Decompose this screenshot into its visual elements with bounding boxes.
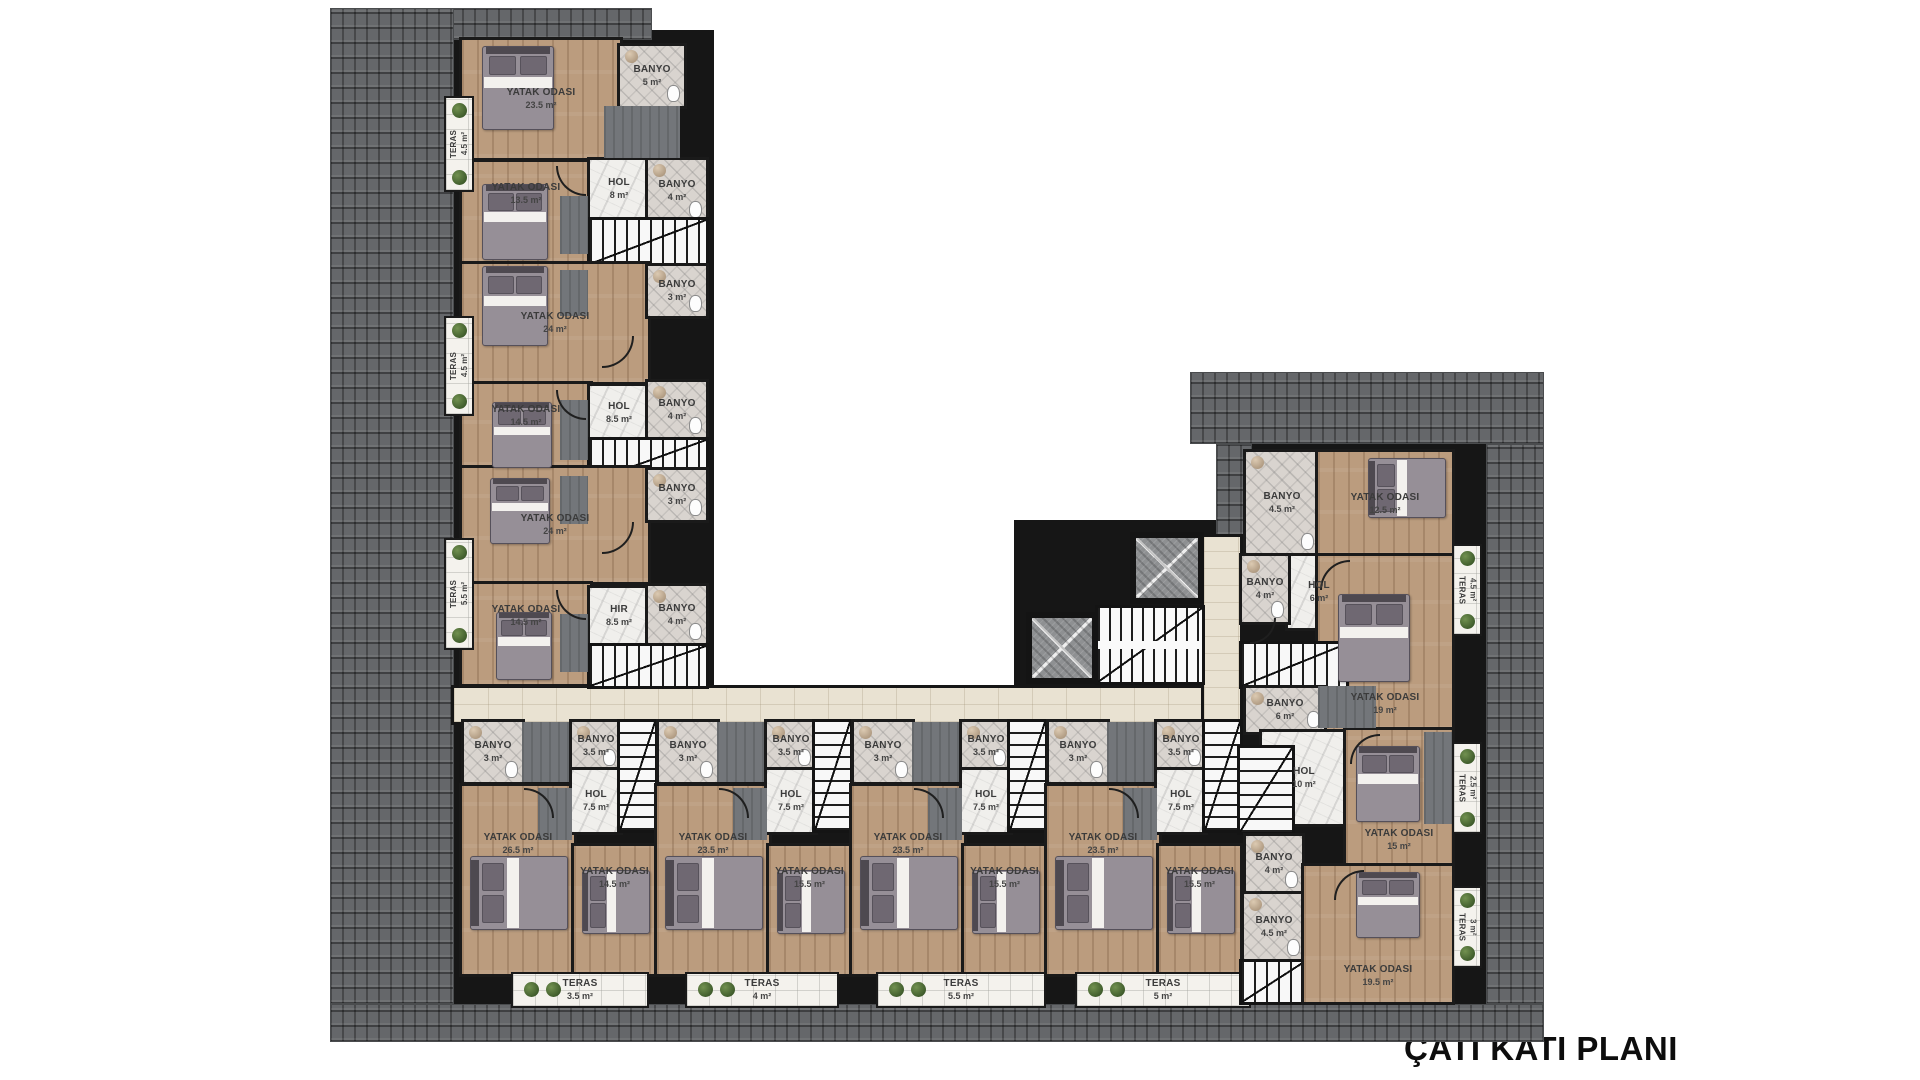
roof-tiles [1190, 372, 1544, 444]
room-bathroom: BANYO4 m² [648, 382, 706, 438]
terrace: TERAS5.5 m² [878, 974, 1044, 1006]
room-hall: HOL7.5 m² [1157, 770, 1205, 832]
terrace: TERAS4.5 m² [446, 318, 472, 414]
room-label: BANYO4.5 m² [1246, 452, 1318, 554]
room-bathroom: BANYO4.5 m² [1246, 452, 1318, 554]
bed-pillow [501, 620, 523, 636]
room-area: 3 m² [484, 753, 503, 764]
bed-headboard [1168, 873, 1173, 930]
room-area: 4.5 m² [1261, 928, 1287, 939]
room-area: 8 m² [610, 190, 629, 201]
room-name: TERAS [944, 978, 979, 991]
bed-headboard [486, 267, 545, 273]
bed-pillow [482, 863, 504, 892]
wardrobe-shading [1318, 686, 1376, 728]
room-label: TERAS5.5 m² [878, 974, 1044, 1006]
room-area: 3 m² [1069, 753, 1088, 764]
bed-sheet [1397, 460, 1407, 516]
room-name: BANYO [1255, 915, 1292, 928]
room-area: 8.5 m² [606, 414, 632, 425]
room-label: TERAS3 m² [1454, 888, 1480, 966]
room-bathroom: BANYO3.5 m² [767, 722, 815, 770]
bed-furniture [1055, 856, 1153, 930]
room-hall: HOL8.5 m² [590, 386, 648, 440]
staircase [620, 722, 655, 830]
room-name: BANYO [658, 483, 695, 496]
bed-headboard [1359, 873, 1416, 878]
room-label: BANYO4 m² [648, 382, 706, 438]
room-area: 3.5 m² [1168, 747, 1194, 758]
bed-pillow [496, 486, 519, 501]
wardrobe-shading [1107, 722, 1157, 782]
room-name: HOL [1293, 766, 1315, 779]
bed-furniture [470, 856, 568, 930]
terrace: TERAS4 m² [687, 974, 837, 1006]
room-hall: HOL8 m² [590, 160, 648, 218]
bed-pillow [1175, 903, 1191, 928]
bed-headboard [1369, 461, 1375, 514]
bed-pillow [1345, 604, 1373, 624]
room-name: BANYO [967, 734, 1004, 747]
room-label: HOL7.5 m² [962, 770, 1010, 832]
room-name: BANYO [474, 740, 511, 753]
room-area: 4.5 m² [460, 132, 470, 155]
bed-pillow [488, 276, 514, 294]
staircase [1205, 722, 1240, 830]
bed-sheet [484, 296, 545, 306]
bed-furniture [777, 870, 845, 934]
bed-headboard [493, 479, 546, 484]
room-bathroom: BANYO3 m² [648, 470, 706, 520]
room-area: 3 m² [874, 753, 893, 764]
room-label: TERAS3.5 m² [513, 974, 647, 1006]
room-area: 26.5 m² [502, 845, 533, 856]
wardrobe-shading [522, 722, 572, 782]
staircase [1010, 722, 1045, 830]
room-area: 3.5 m² [567, 991, 593, 1002]
bed-pillow [1175, 876, 1191, 901]
room-bathroom: BANYO3 m² [659, 722, 717, 782]
room-name: HOL [608, 177, 630, 190]
bed-sheet [1092, 858, 1104, 927]
room-name: HOL [1170, 789, 1192, 802]
room-area: 7.5 m² [1168, 802, 1194, 813]
room-area: 3 m² [668, 292, 687, 303]
bed-furniture [1338, 594, 1410, 682]
room-name: HOL [975, 789, 997, 802]
bed-furniture [482, 184, 548, 260]
room-label: HIR8.5 m² [590, 588, 648, 644]
room-name: BANYO [1255, 852, 1292, 865]
room-area: 3 m² [1468, 919, 1478, 935]
room-name: HOL [585, 789, 607, 802]
room-label: BANYO3 m² [1049, 722, 1107, 782]
room-name: BANYO [658, 398, 695, 411]
room-area: 3.5 m² [973, 747, 999, 758]
bed-pillow [872, 863, 894, 892]
room-area: 10 m² [1292, 779, 1316, 790]
bed-sheet [1358, 774, 1418, 784]
terrace: TERAS3 m² [1454, 888, 1480, 966]
bed-headboard [486, 185, 545, 191]
room-name: HIR [610, 604, 628, 617]
room-hall: HIR8.5 m² [590, 588, 648, 644]
staircase [1240, 748, 1292, 832]
bed-headboard [1056, 860, 1064, 926]
room-name: BANYO [1266, 698, 1303, 711]
room-name: HOL [608, 401, 630, 414]
room-name: TERAS [449, 580, 459, 608]
bed-pillow [498, 410, 521, 425]
room-name: BANYO [1162, 734, 1199, 747]
room-name: BANYO [577, 734, 614, 747]
bed-pillow [1376, 604, 1404, 624]
staircase [590, 220, 706, 264]
terrace: TERAS2.5 m² [1454, 744, 1480, 832]
wardrobe-shading [560, 196, 588, 254]
room-label: BANYO6 m² [1246, 688, 1324, 732]
room-name: BANYO [658, 179, 695, 192]
bed-pillow [872, 895, 894, 924]
bed-furniture [860, 856, 958, 930]
room-label: TERAS4.5 m² [446, 318, 472, 414]
room-label: TERAS4.5 m² [1454, 546, 1480, 634]
room-label: BANYO3.5 m² [1157, 722, 1205, 770]
room-name: YATAK ODASI [1344, 964, 1413, 977]
bed-furniture [1356, 872, 1420, 938]
room-name: BANYO [669, 740, 706, 753]
room-label: BANYO3 m² [854, 722, 912, 782]
bed-headboard [973, 873, 978, 930]
room-area: 4.5 m² [460, 354, 470, 377]
room-bathroom: BANYO3 m² [648, 266, 706, 316]
room-name: BANYO [658, 279, 695, 292]
staircase [590, 646, 706, 686]
room-label: TERAS5.5 m² [446, 540, 472, 648]
room-name: TERAS [1457, 576, 1467, 604]
room-area: 3 m² [679, 753, 698, 764]
bed-sheet [997, 872, 1006, 932]
room-area: 3.5 m² [583, 747, 609, 758]
room-area: 5 m² [643, 77, 662, 88]
bed-pillow [1389, 880, 1414, 895]
room-hall: HOL7.5 m² [767, 770, 815, 832]
room-name: BANYO [1246, 577, 1283, 590]
room-bathroom: BANYO4 m² [648, 160, 706, 222]
bed-furniture [1167, 870, 1235, 934]
wardrobe-shading [560, 614, 588, 672]
bed-sheet [1192, 872, 1201, 932]
bed-pillow [590, 903, 606, 928]
room-area: 4 m² [668, 411, 687, 422]
room-area: 6 m² [1276, 711, 1295, 722]
room-bathroom: BANYO4.5 m² [1244, 894, 1304, 960]
room-area: 15 m² [1387, 841, 1411, 852]
room-bathroom: BANYO3.5 m² [572, 722, 620, 770]
bed-sheet [494, 427, 550, 435]
room-name: TERAS [449, 352, 459, 380]
wardrobe-shading [1424, 732, 1452, 824]
bed-furniture [492, 402, 552, 468]
terrace: TERAS5 m² [1077, 974, 1249, 1006]
bed-sheet [484, 77, 551, 88]
room-label: BANYO4 m² [1246, 836, 1302, 892]
bed-furniture [496, 612, 552, 680]
bed-pillow [1067, 895, 1089, 924]
bed-sheet [897, 858, 909, 927]
room-area: 7.5 m² [973, 802, 999, 813]
room-name: TERAS [1457, 774, 1467, 802]
bed-pillow [488, 193, 514, 211]
roof-tiles [330, 1004, 1544, 1042]
room-area: 7.5 m² [583, 802, 609, 813]
bed-sheet [1358, 897, 1418, 905]
corridor-floor [454, 688, 1212, 722]
bed-sheet [702, 858, 714, 927]
staircase [1242, 644, 1346, 686]
room-label: TERAS5 m² [1077, 974, 1249, 1006]
bed-pillow [489, 56, 517, 75]
room-bathroom: BANYO5 m² [620, 46, 684, 106]
room-label: TERAS2.5 m² [1454, 744, 1480, 832]
roof-tiles [330, 8, 454, 1004]
room-hall: HOL7.5 m² [572, 770, 620, 832]
room-area: 5 m² [1154, 991, 1173, 1002]
bed-pillow [525, 620, 547, 636]
bed-pillow [785, 903, 801, 928]
terrace: TERAS4.5 m² [1454, 546, 1480, 634]
bed-sheet [498, 637, 550, 646]
bed-pillow [980, 876, 996, 901]
room-name: BANYO [1059, 740, 1096, 753]
room-label: HOL8 m² [590, 160, 648, 218]
wardrobe-shading [912, 722, 962, 782]
room-area: 8.5 m² [606, 617, 632, 628]
room-bathroom: BANYO3 m² [854, 722, 912, 782]
room-name: TERAS [449, 130, 459, 158]
bed-headboard [861, 860, 869, 926]
room-area: 4.5 m² [1468, 578, 1478, 601]
room-area: 2.5 m² [1468, 776, 1478, 799]
bed-headboard [486, 47, 550, 54]
room-label: TERAS4.5 m² [446, 98, 472, 190]
bed-pillow [785, 876, 801, 901]
bed-pillow [516, 193, 542, 211]
room-area: 4.5 m² [1269, 504, 1295, 515]
room-label: HOL8.5 m² [590, 386, 648, 440]
bed-sheet [607, 872, 616, 932]
room-area: 23.5 m² [1087, 845, 1118, 856]
staircase [1098, 608, 1202, 682]
room-label: HOL7.5 m² [767, 770, 815, 832]
bed-pillow [1377, 464, 1395, 487]
room-name: TERAS [745, 978, 780, 991]
room-label: BANYO4 m² [648, 586, 706, 644]
room-area: 4 m² [753, 991, 772, 1002]
elevator-shaft [1026, 612, 1098, 684]
wardrobe-shading [604, 106, 680, 158]
bed-sheet [484, 212, 545, 222]
bed-headboard [1342, 595, 1406, 602]
bed-pillow [1067, 863, 1089, 892]
floor-plan-canvas: ÇATI KATI PLANI YATAK ODASI23.5 m²BANYO5… [0, 0, 1920, 1080]
room-label: BANYO3 m² [648, 470, 706, 520]
bed-pillow [482, 895, 504, 924]
room-area: 19.5 m² [1362, 977, 1393, 988]
bed-headboard [583, 873, 588, 930]
terrace: TERAS5.5 m² [446, 540, 472, 648]
bed-headboard [666, 860, 674, 926]
bed-pillow [1377, 489, 1395, 512]
room-name: BANYO [633, 64, 670, 77]
bed-headboard [778, 873, 783, 930]
room-label: BANYO3 m² [659, 722, 717, 782]
room-name: TERAS [563, 978, 598, 991]
bed-sheet [802, 872, 811, 932]
bed-furniture [482, 46, 554, 130]
room-name: BANYO [864, 740, 901, 753]
staircase [815, 722, 850, 830]
bed-sheet [507, 858, 519, 927]
bed-pillow [516, 276, 542, 294]
wardrobe-shading [717, 722, 767, 782]
bed-pillow [677, 863, 699, 892]
terrace: TERAS4.5 m² [446, 98, 472, 190]
bed-sheet [1340, 627, 1407, 638]
room-area: 4 m² [1256, 590, 1275, 601]
room-bathroom: BANYO4 m² [1246, 836, 1302, 892]
bed-pillow [590, 876, 606, 901]
room-bathroom: BANYO6 m² [1246, 688, 1324, 732]
bed-pillow [520, 56, 548, 75]
room-label: TERAS4 m² [687, 974, 837, 1006]
room-area: 3.5 m² [778, 747, 804, 758]
elevator-shaft [1130, 532, 1204, 604]
bed-pillow [1362, 880, 1387, 895]
bed-furniture [582, 870, 650, 934]
room-name: BANYO [1263, 491, 1300, 504]
staircase [1242, 962, 1304, 1002]
room-area: 4 m² [1265, 865, 1284, 876]
room-bathroom: BANYO4 m² [1242, 556, 1288, 622]
bed-headboard [499, 613, 549, 618]
room-bathroom: BANYO3.5 m² [962, 722, 1010, 770]
room-label: BANYO3.5 m² [572, 722, 620, 770]
room-area: 23.5 m² [697, 845, 728, 856]
bed-headboard [471, 860, 479, 926]
terrace: TERAS3.5 m² [513, 974, 647, 1006]
room-label: BANYO3.5 m² [962, 722, 1010, 770]
bed-pillow [523, 410, 546, 425]
bed-pillow [1389, 755, 1414, 773]
room-label: BANYO3.5 m² [767, 722, 815, 770]
room-name: TERAS [1146, 978, 1181, 991]
room-label: BANYO4 m² [648, 160, 706, 222]
bed-furniture [972, 870, 1040, 934]
bed-headboard [495, 403, 548, 408]
bed-furniture [665, 856, 763, 930]
room-label: BANYO3 m² [648, 266, 706, 316]
bed-pillow [980, 903, 996, 928]
bed-pillow [677, 895, 699, 924]
room-area: 3 m² [668, 496, 687, 507]
corridor-floor [1204, 537, 1240, 722]
bed-furniture [1368, 458, 1446, 518]
room-label: HOL7.5 m² [1157, 770, 1205, 832]
room-area: 7.5 m² [778, 802, 804, 813]
bed-furniture [482, 266, 548, 346]
room-name: YATAK ODASI [1365, 828, 1434, 841]
bed-pillow [521, 486, 544, 501]
bed-sheet [492, 503, 548, 511]
room-bathroom: BANYO4 m² [648, 586, 706, 644]
room-label: BANYO4.5 m² [1244, 894, 1304, 960]
wardrobe-shading [560, 476, 588, 524]
room-name: BANYO [772, 734, 809, 747]
room-name: BANYO [658, 603, 695, 616]
room-label: BANYO5 m² [620, 46, 684, 106]
room-hall: HOL7.5 m² [962, 770, 1010, 832]
room-bathroom: BANYO3 m² [464, 722, 522, 782]
room-area: 5.5 m² [460, 582, 470, 605]
room-area: 4 m² [668, 616, 687, 627]
roof-tiles [1486, 444, 1544, 1004]
room-label: BANYO4 m² [1242, 556, 1288, 622]
wardrobe-shading [560, 270, 588, 316]
room-bathroom: BANYO3.5 m² [1157, 722, 1205, 770]
room-area: 19 m² [1373, 705, 1397, 716]
room-area: 4 m² [668, 192, 687, 203]
room-name: TERAS [1457, 913, 1467, 941]
room-bathroom: BANYO3 m² [1049, 722, 1107, 782]
room-label: BANYO3 m² [464, 722, 522, 782]
room-name: HOL [780, 789, 802, 802]
room-area: 5.5 m² [948, 991, 974, 1002]
room-area: 23.5 m² [892, 845, 923, 856]
bed-furniture [490, 478, 550, 544]
room-label: HOL7.5 m² [572, 770, 620, 832]
